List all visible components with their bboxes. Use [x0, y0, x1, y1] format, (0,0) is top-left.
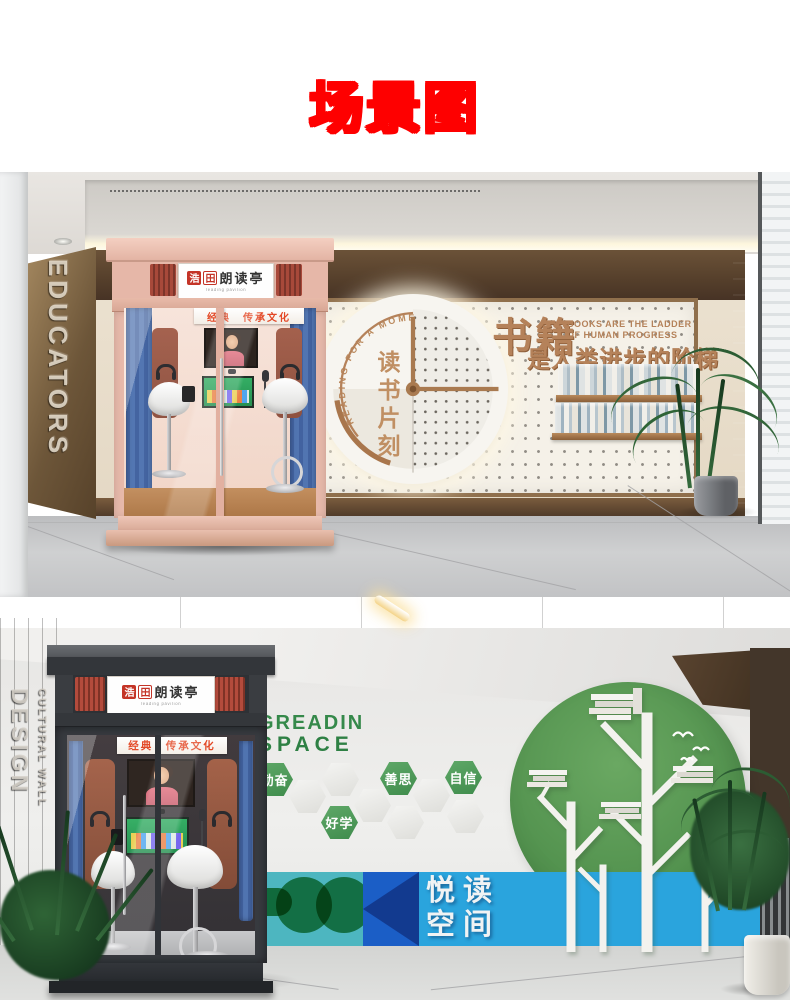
band-slogan: 悦读 空间 [426, 874, 500, 942]
booth-name-sub: reading pavilion [141, 702, 182, 706]
page-title: 场景图 [0, 64, 790, 143]
band-shape-k-block [363, 872, 419, 946]
booth-crown [47, 645, 275, 657]
s1-downlight [54, 238, 72, 245]
booth-end-column [249, 675, 267, 713]
clock-center-text: 读书片刻 [374, 350, 404, 466]
booth-crown [106, 238, 334, 262]
s2-design-text: DESIGN [6, 688, 33, 807]
reading-booth-pink: 浩 田 朗读亭 reading pavilion 经典 传承文化 [112, 238, 328, 548]
booth-crown [47, 657, 275, 675]
booth-cornice-band [55, 713, 267, 727]
s1-bronze-wall: EDUCATORS [28, 247, 96, 519]
booth-base-plinth [106, 530, 334, 546]
s2-cultural-wall-text: CULTURAL WALL [36, 688, 48, 807]
bird-icon [673, 733, 709, 761]
s1-ceiling-vent [110, 190, 480, 192]
booth-name-sub: reading pavilion [206, 288, 247, 292]
band-slogan-line2: 空间 [426, 908, 500, 942]
booth-logo-icon: 浩 [122, 685, 136, 699]
door-handle [220, 358, 223, 476]
booth-slat-panel [276, 264, 302, 296]
booth-sign: 浩 田 朗读亭 reading pavilion [178, 263, 274, 299]
s1-clock: READING FOR A MOMENT 读书片刻 [318, 294, 508, 484]
s1-left-wall [0, 172, 28, 597]
page: 场景图 READING FOR A MOMENT [0, 0, 790, 1000]
booth-sign: 浩 田 朗读亭 reading pavilion [107, 676, 215, 714]
s1-slogan-en1: BOOKS ARE THE LADDER [567, 319, 692, 329]
booth-interior: 经典 传承文化 [124, 308, 316, 518]
booth-name: 朗读亭 [154, 682, 199, 701]
s1-plant-pot [694, 476, 738, 516]
booth-logo-icon: 田 [203, 271, 217, 285]
door-mullion [155, 735, 161, 955]
band-slogan-line1: 悦读 [426, 874, 500, 908]
booth-slat-panel [215, 677, 245, 711]
booth-name: 朗读亭 [219, 268, 264, 287]
booth-slat-panel [150, 264, 176, 296]
booth-end-column [55, 675, 73, 713]
band-shape-k-triangle [363, 872, 419, 946]
booth-slat-panel [75, 677, 105, 711]
s2-left-plant [0, 810, 130, 1000]
booth-logo-icon: 浩 [187, 271, 201, 285]
s1-educators-text: EDUCATORS [42, 259, 73, 507]
booth-logo-icon: 田 [138, 685, 152, 699]
clock-face: READING FOR A MOMENT [318, 294, 508, 484]
s2-right-plant-pot [744, 935, 790, 995]
s2-wall-title-1: GREADIN [258, 712, 364, 735]
s2-right-plant [680, 760, 790, 950]
s2-wall-title-2: SPACE [258, 733, 354, 757]
